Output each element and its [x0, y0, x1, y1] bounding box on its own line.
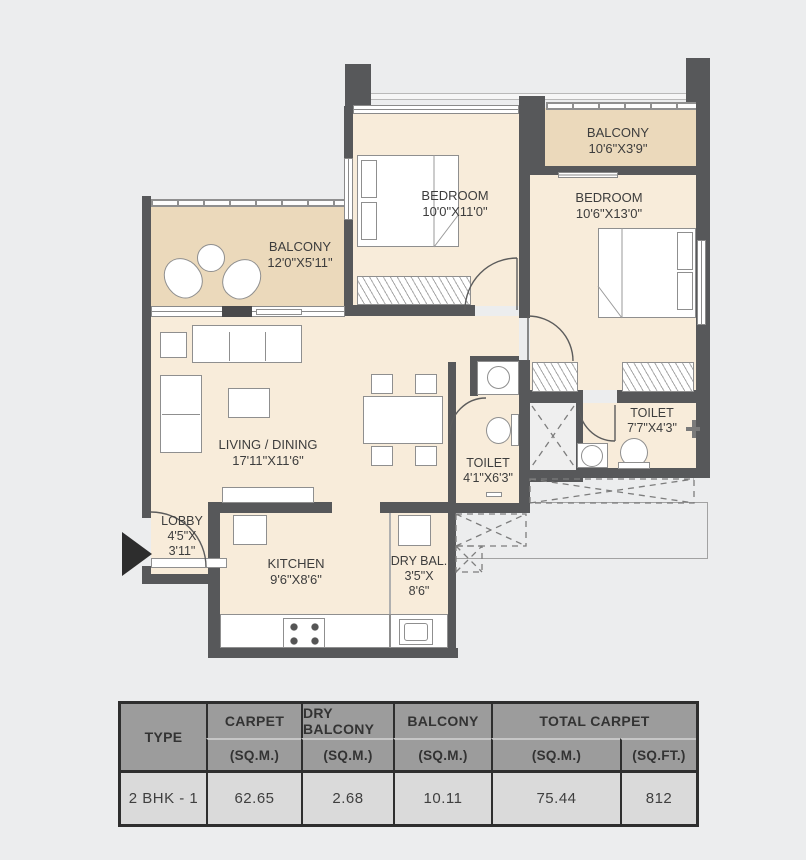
- cell-total-sqm: 75.44: [491, 770, 620, 824]
- col-header-type: TYPE: [121, 704, 206, 770]
- faucet-icon: [486, 492, 502, 497]
- balcony-left-railing: [151, 199, 344, 207]
- room-dims: 12'0"X5'11": [267, 255, 332, 270]
- col-header-total-carpet: TOTAL CARPET: [491, 704, 696, 738]
- wall: [208, 502, 332, 513]
- room-dims: 9'6"X8'6": [270, 572, 322, 587]
- room-dims: 3'5"X: [404, 569, 433, 583]
- entrance-arrow-icon: [122, 532, 152, 576]
- dining-chair: [371, 446, 393, 466]
- room-dims: 3'11": [169, 544, 196, 558]
- room-label-bedroom-1: BEDROOM 10'0"X11'0": [421, 188, 488, 220]
- room-name: LOBBY: [161, 514, 203, 528]
- sink-basin: [404, 623, 428, 641]
- room-name: BALCONY: [587, 125, 649, 140]
- tv-unit: [222, 487, 314, 503]
- unit-header-total-sqft: (SQ.FT.): [620, 738, 696, 770]
- room-name: TOILET: [466, 456, 510, 470]
- wall: [576, 468, 710, 478]
- room-dims: 4'1"X6'3": [463, 471, 513, 485]
- room-name: DRY BAL.: [391, 554, 448, 568]
- kitchen-appliance: [233, 515, 267, 545]
- room-name: BALCONY: [269, 239, 331, 254]
- room-dims: 8'6": [409, 584, 430, 598]
- col-header-carpet: CARPET: [206, 704, 301, 738]
- cell-balcony-sqm: 10.11: [393, 770, 491, 824]
- coffee-table: [228, 388, 270, 418]
- pillow: [677, 232, 693, 270]
- room-dims: 17'11"X11'6": [232, 453, 304, 468]
- cell-carpet-sqm: 62.65: [206, 770, 301, 824]
- wardrobe: [622, 362, 694, 392]
- dining-table: [363, 396, 443, 444]
- sofa-two-seater: [160, 375, 202, 453]
- room-name: BEDROOM: [575, 190, 642, 205]
- shaft: [530, 403, 576, 470]
- wall: [208, 502, 220, 658]
- tv-panel: [222, 306, 252, 317]
- wall: [344, 305, 475, 316]
- pillow: [361, 160, 377, 198]
- bedroom1-window: [353, 105, 519, 114]
- room-name: KITCHEN: [267, 556, 324, 571]
- sofa-divider: [229, 332, 230, 361]
- wall: [380, 502, 448, 513]
- area-table: TYPE CARPET DRY BALCONY BALCONY TOTAL CA…: [118, 701, 699, 827]
- room-dims: 7'7"X4'3": [627, 421, 677, 435]
- balcony-round-table: [197, 244, 225, 272]
- pillow: [361, 202, 377, 240]
- pillow: [677, 272, 693, 310]
- washbasin-icon: [487, 366, 510, 389]
- wall: [519, 96, 530, 318]
- wall: [448, 503, 530, 513]
- room-label-toilet-1: TOILET 4'1"X6'3": [463, 456, 513, 486]
- room-dims: 10'6"X3'9": [588, 141, 647, 156]
- cell-dry-balcony-sqm: 2.68: [301, 770, 393, 824]
- side-table: [160, 332, 187, 358]
- shower-icon: [686, 427, 700, 431]
- floor-plan: BALCONY 10'6"X3'9" BEDROOM 10'0"X11'0" B…: [0, 0, 806, 700]
- stove-icon: [283, 618, 325, 648]
- unit-header-total-sqm: (SQ.M.): [491, 738, 620, 770]
- room-label-living: LIVING / DINING 17'11"X11'6": [219, 437, 318, 469]
- unit-header-dry-balcony-sqm: (SQ.M.): [301, 738, 393, 770]
- dining-chair: [415, 374, 437, 394]
- bedroom1-side-window: [344, 158, 353, 220]
- room-label-balcony-top: BALCONY 10'6"X3'9": [587, 125, 649, 157]
- wc-tank: [511, 414, 519, 446]
- wardrobe: [357, 276, 471, 305]
- room-name: LIVING / DINING: [219, 437, 318, 452]
- room-label-lobby: LOBBY 4'5"X 3'11": [161, 514, 203, 559]
- wardrobe: [532, 362, 578, 392]
- entrance-door-leaf: [151, 558, 227, 568]
- sofa-divider: [265, 332, 266, 361]
- room-name: BEDROOM: [421, 188, 488, 203]
- room-dims: 10'0"X11'0": [422, 204, 487, 219]
- room-name: TOILET: [630, 406, 674, 420]
- sofa-divider: [162, 414, 200, 415]
- room-label-bedroom-2: BEDROOM 10'6"X13'0": [575, 190, 642, 222]
- room-dims: 10'6"X13'0": [576, 206, 642, 221]
- wall: [142, 196, 151, 518]
- wall: [686, 58, 710, 108]
- sofa-three-seater: [192, 325, 302, 363]
- wall: [525, 470, 583, 482]
- dining-chair: [371, 374, 393, 394]
- washing-machine: [398, 515, 431, 546]
- wc-tank: [618, 462, 650, 469]
- bedroom2-side-window: [697, 240, 706, 325]
- room-label-toilet-2: TOILET 7'7"X4'3": [627, 406, 677, 436]
- room-label-kitchen: KITCHEN 9'6"X8'6": [267, 556, 324, 588]
- balcony-top-sliding-door: [558, 172, 618, 178]
- cell-total-sqft: 812: [620, 770, 696, 824]
- col-header-balcony: BALCONY: [393, 704, 491, 738]
- cell-unit-type: 2 BHK - 1: [121, 770, 206, 824]
- room-label-balcony-left: BALCONY 12'0"X5'11": [267, 239, 332, 271]
- unit-header-balcony-sqm: (SQ.M.): [393, 738, 491, 770]
- washbasin-icon: [581, 445, 603, 467]
- wc-icon: [486, 417, 511, 444]
- balcony-top-railing: [546, 102, 696, 110]
- room-label-dry-balcony: DRY BAL. 3'5"X 8'6": [391, 554, 448, 599]
- tv-console: [256, 309, 302, 315]
- wall: [208, 648, 458, 658]
- room-dims: 4'5"X: [167, 529, 196, 543]
- unit-header-carpet-sqm: (SQ.M.): [206, 738, 301, 770]
- col-header-dry-balcony: DRY BALCONY: [301, 704, 393, 738]
- dining-chair: [415, 446, 437, 466]
- kitchen-entry-gap: [332, 502, 380, 516]
